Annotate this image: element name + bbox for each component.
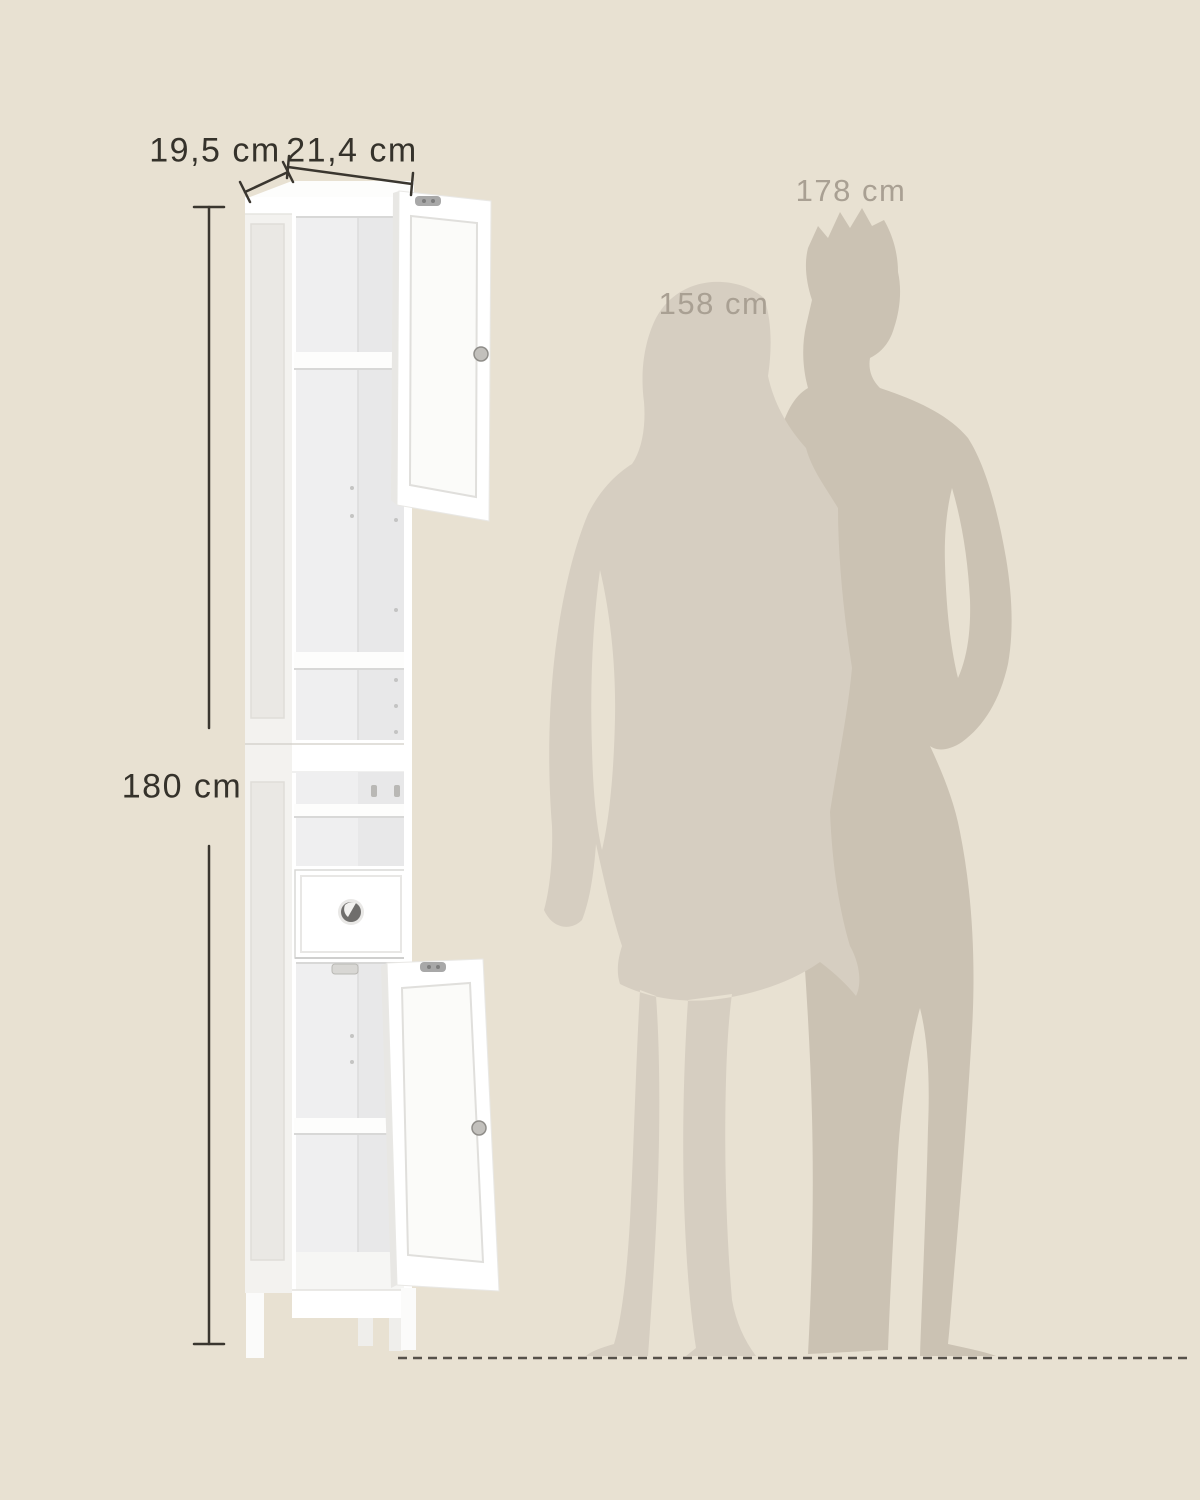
door-hinge — [415, 196, 441, 206]
width-dimension-label: 21,4 cm — [286, 132, 417, 171]
lower-door-knob — [472, 1121, 486, 1135]
upper-shelf-1 — [294, 352, 406, 369]
illustration-canvas — [0, 0, 1200, 1500]
woman-height-label: 158 cm — [659, 286, 770, 322]
door-hinge — [420, 962, 446, 972]
lower-door-open — [381, 959, 499, 1291]
upper-door-knob — [474, 347, 488, 361]
upper-shelf-2 — [294, 652, 406, 669]
drawer — [295, 870, 407, 958]
cabinet-leg — [246, 1293, 264, 1358]
unit-seam — [292, 740, 412, 772]
cabinet-leg — [358, 1318, 373, 1346]
product-dimension-scene: 19,5 cm 21,4 cm 180 cm 178 cm 158 cm — [0, 0, 1200, 1500]
upper-compartment — [294, 216, 406, 740]
background — [0, 0, 1200, 1500]
upper-door-open — [391, 191, 491, 521]
cabinet-leg — [389, 1318, 403, 1351]
cabinet-floor — [296, 1252, 404, 1290]
depth-dimension-label: 19,5 cm — [149, 132, 280, 171]
open-niche — [294, 772, 406, 866]
man-height-label: 178 cm — [796, 173, 907, 209]
drawer-knob — [338, 899, 364, 925]
cabinet-leg — [401, 1288, 416, 1350]
height-dimension-label: 180 cm — [122, 768, 243, 807]
cabinet-left-side-panel — [245, 197, 292, 1293]
